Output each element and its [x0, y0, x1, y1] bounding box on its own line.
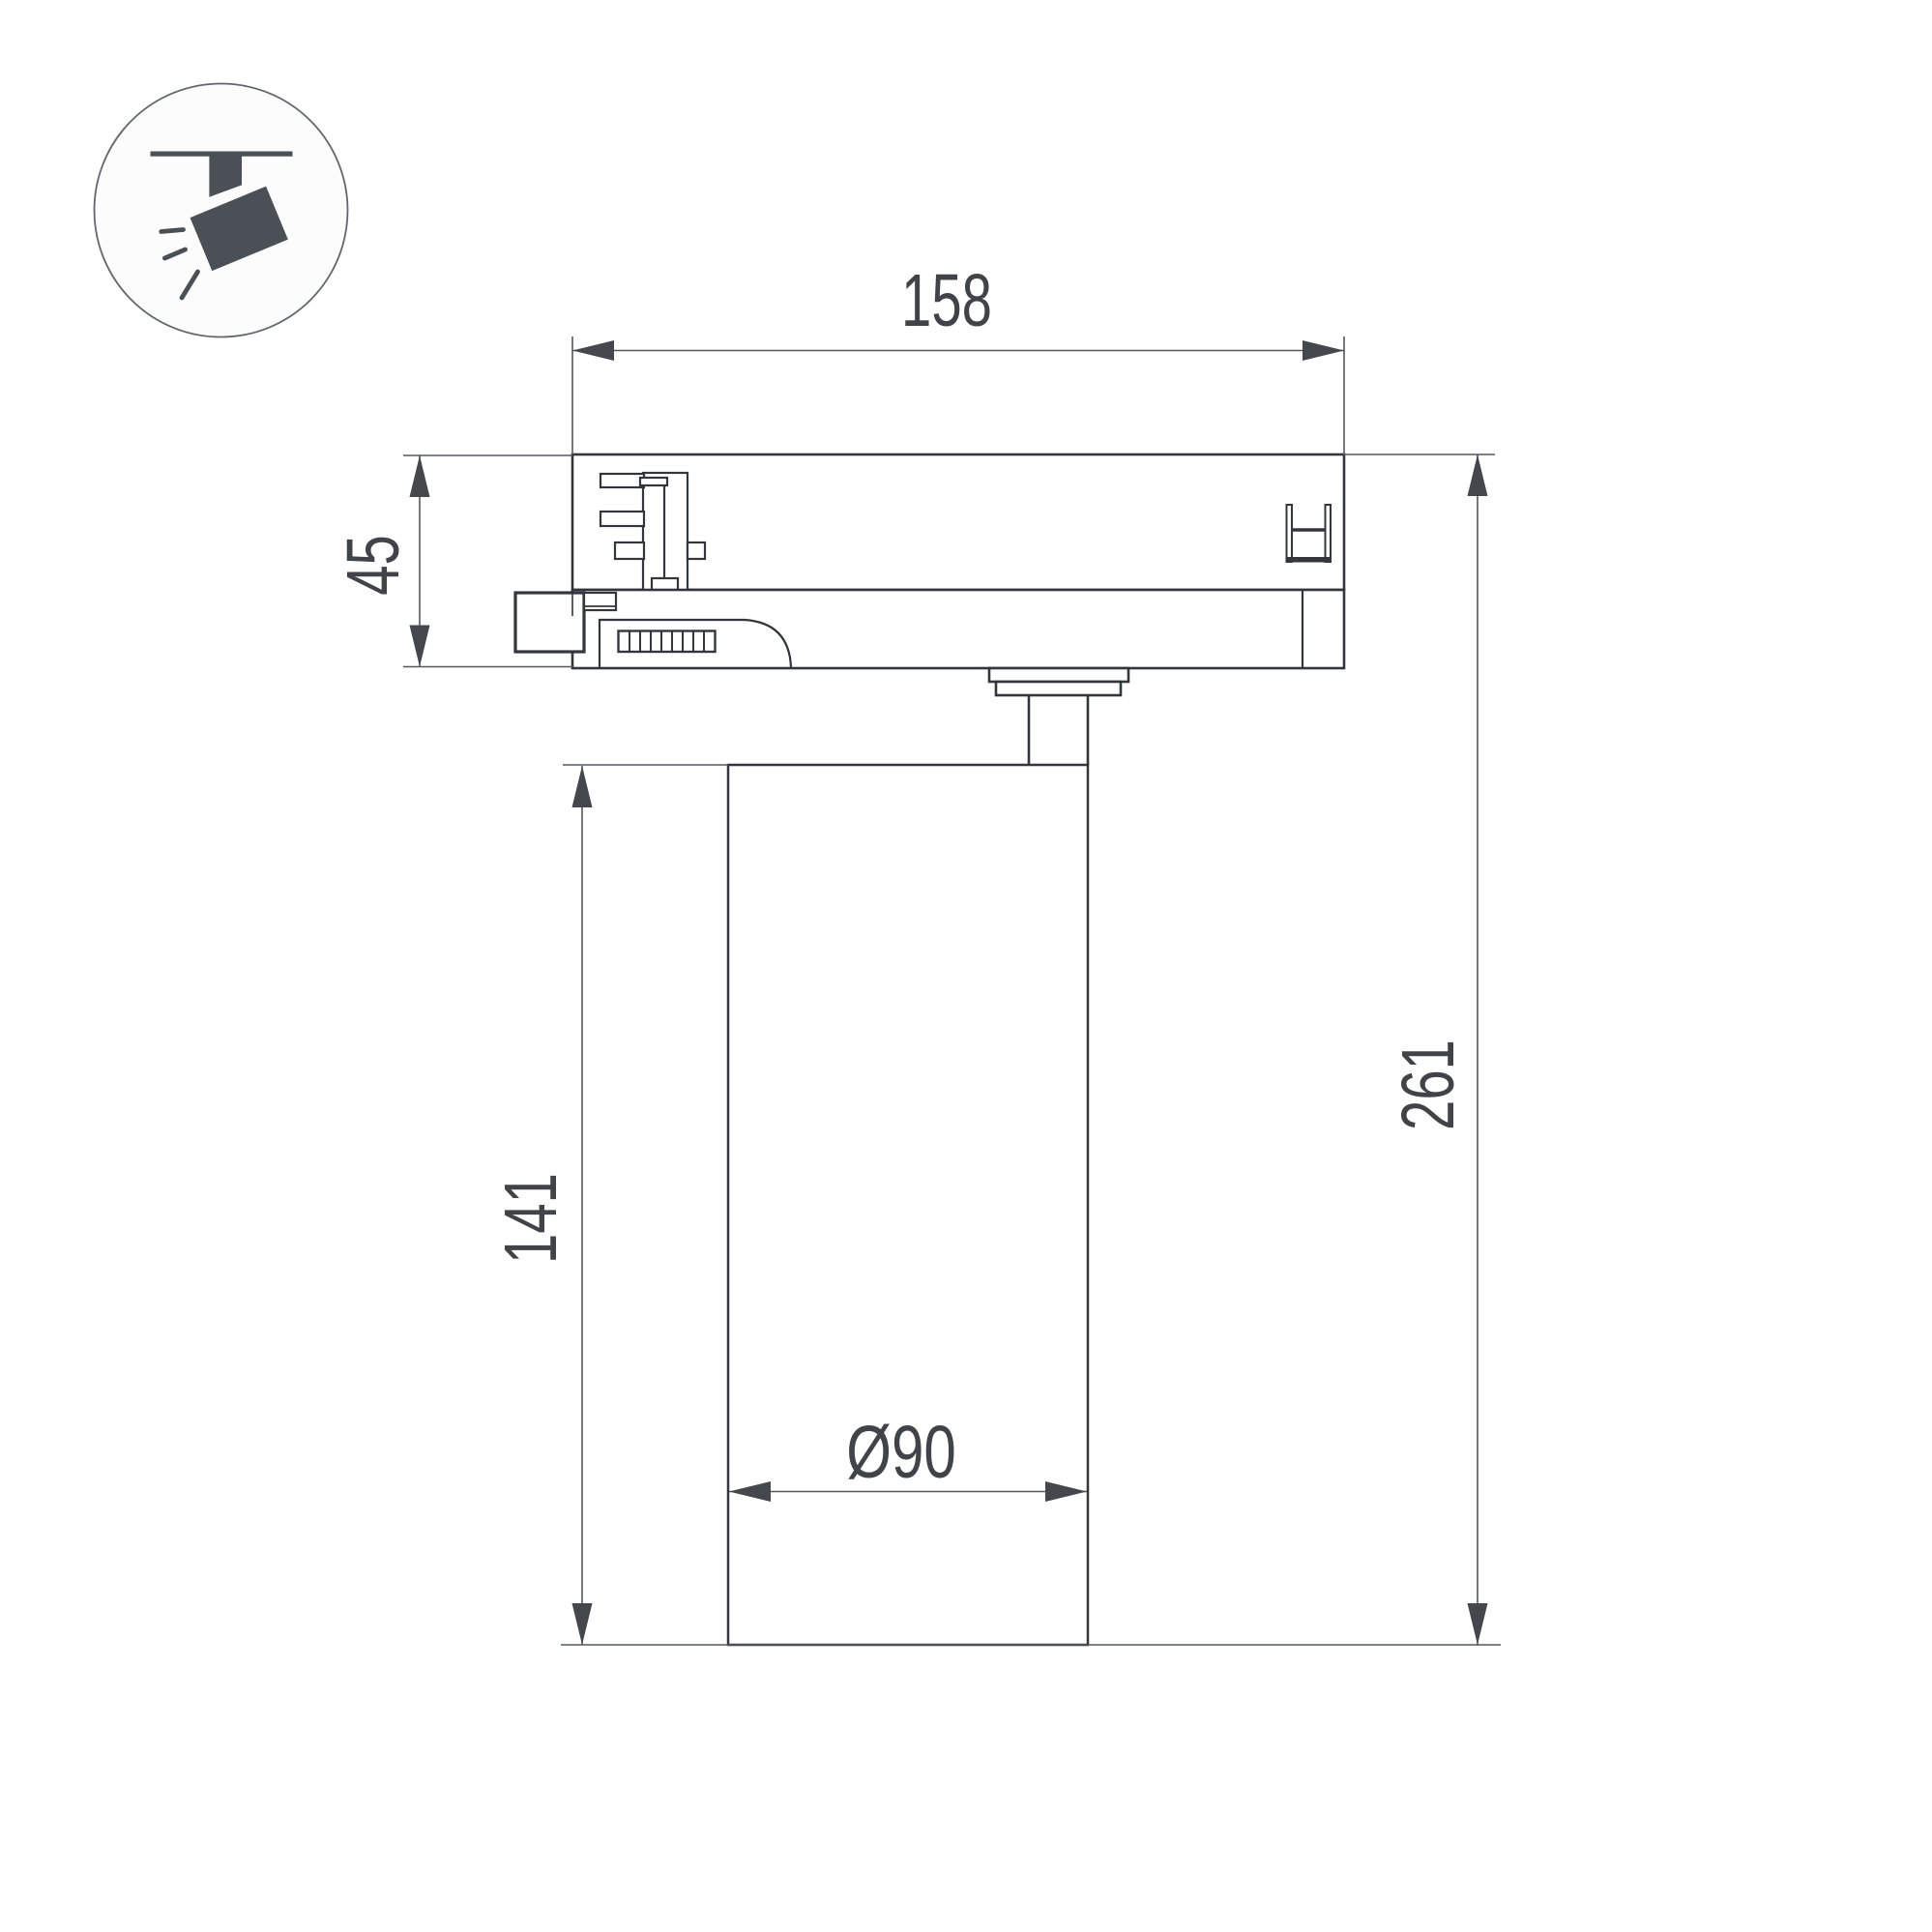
svg-text:158: 158	[901, 259, 992, 342]
svg-text:261: 261	[1387, 1039, 1470, 1130]
svg-text:45: 45	[332, 535, 415, 596]
svg-text:141: 141	[489, 1173, 572, 1264]
svg-text:Ø90: Ø90	[846, 1410, 956, 1494]
